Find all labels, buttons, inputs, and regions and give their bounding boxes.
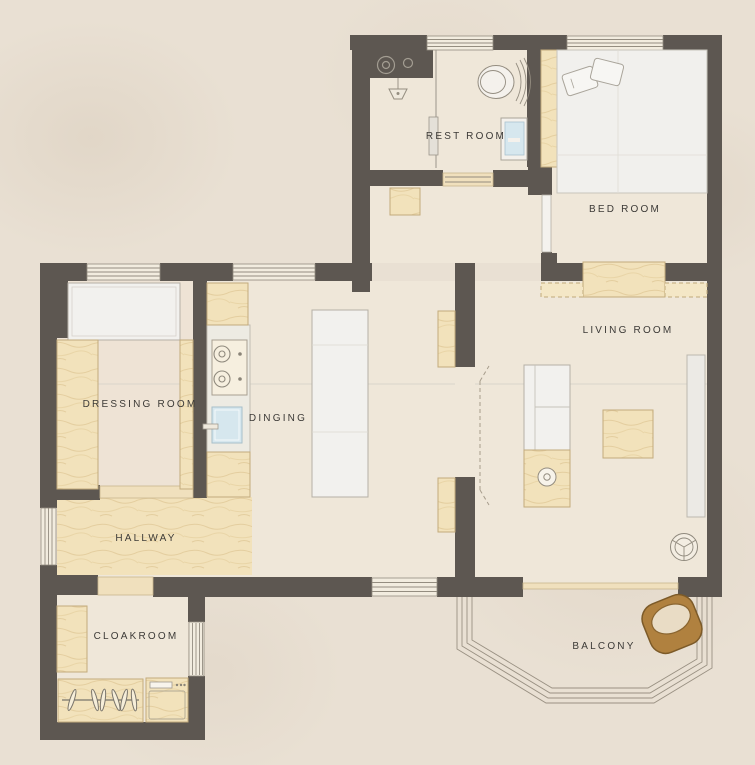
room-label-living-room: LIVING ROOM xyxy=(583,325,674,336)
dresser xyxy=(68,283,180,340)
wall-segment xyxy=(527,50,541,167)
room-label-bed-room: BED ROOM xyxy=(589,204,661,215)
restroom-door-threshold xyxy=(443,173,493,186)
room-label-rest-room: REST ROOM xyxy=(426,131,506,142)
wall-segment xyxy=(57,263,68,338)
wall-segment xyxy=(188,595,205,622)
wall-segment xyxy=(455,263,475,367)
wall-segment xyxy=(40,565,57,740)
wall-segment xyxy=(193,263,207,498)
side-cabinet xyxy=(438,478,455,532)
storage-cabinet-dashed xyxy=(541,283,583,297)
wall-segment xyxy=(437,577,523,597)
bedroom-cabinet xyxy=(583,262,665,297)
wall-segment xyxy=(40,722,205,740)
room-label-cloakroom: CLOAKROOM xyxy=(94,631,179,642)
kitchen-cabinet xyxy=(207,283,248,325)
wall-segment xyxy=(188,676,205,722)
wall-segment xyxy=(541,253,557,263)
room-label-balcony: BALCONY xyxy=(572,641,635,652)
floor-plan: REST ROOM BED ROOM LIVING ROOM DRESSING … xyxy=(0,0,755,765)
wall-segment xyxy=(528,167,552,195)
wardrobe xyxy=(541,50,557,167)
window xyxy=(427,36,493,50)
dining-table xyxy=(312,310,368,497)
doormat xyxy=(390,188,420,215)
wall-segment xyxy=(707,35,722,597)
wall-segment xyxy=(493,35,567,50)
wardrobe xyxy=(57,340,98,489)
kitchen-cabinet xyxy=(207,452,250,497)
hanger-wardrobe xyxy=(58,679,143,722)
window xyxy=(41,508,56,565)
window xyxy=(87,264,160,280)
room-label-dressing-room: DRESSING ROOM xyxy=(83,399,198,410)
sofa xyxy=(524,365,570,450)
plant-icon xyxy=(671,534,698,561)
window xyxy=(233,264,315,280)
sofa-side-table xyxy=(524,450,570,507)
window xyxy=(567,36,663,50)
side-cabinet xyxy=(438,311,455,367)
storage-cabinet-dashed xyxy=(665,283,707,297)
wall-segment xyxy=(455,477,475,577)
coffee-table xyxy=(603,410,653,458)
cloak-cabinet xyxy=(57,606,87,672)
kitchen xyxy=(203,283,250,497)
wall-segment xyxy=(678,577,722,597)
room-label-dining: DINGING xyxy=(249,413,307,424)
dressing-door-threshold xyxy=(100,486,193,498)
wardrobe xyxy=(180,340,193,489)
wall-segment xyxy=(153,577,372,597)
room-label-hallway: HALLWAY xyxy=(115,533,176,544)
wall-segment xyxy=(355,170,443,186)
tv-cabinet xyxy=(687,355,705,517)
wall-segment xyxy=(315,263,372,281)
washing-machine xyxy=(146,678,188,722)
stove-icon xyxy=(212,340,247,395)
louver-door xyxy=(189,622,204,676)
bed xyxy=(557,50,707,193)
wall-segment xyxy=(40,263,57,508)
balcony-chair xyxy=(637,590,707,658)
wall-segment xyxy=(57,575,98,595)
window xyxy=(372,578,437,596)
bedroom-door xyxy=(542,195,551,252)
shower-counter xyxy=(367,50,433,78)
cloakroom-door-threshold xyxy=(98,577,153,595)
faucet-icon xyxy=(203,424,218,429)
balcony-door-threshold xyxy=(523,583,678,589)
